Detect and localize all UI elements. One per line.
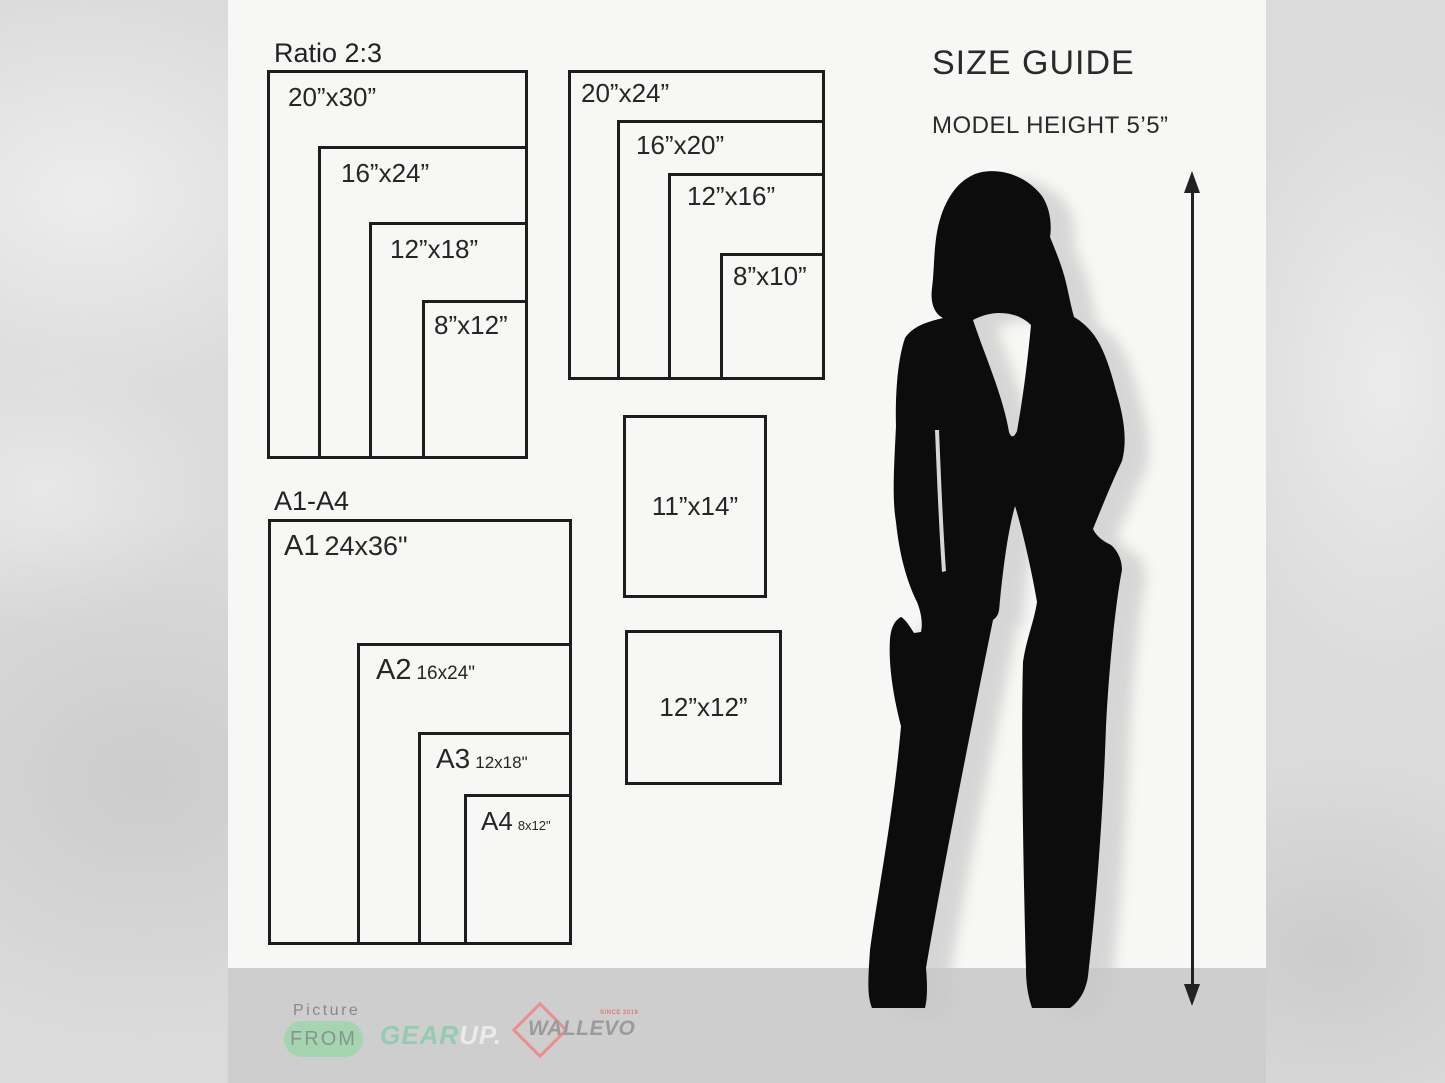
size-box-8x10: 8”x10”: [720, 253, 825, 380]
wallevo-logo: WALLEVO: [528, 1017, 635, 1041]
size-box-12x12: 12”x12”: [625, 630, 782, 785]
size-label-16x20: 16”x20”: [620, 123, 822, 160]
size-box-11x14: 11”x14”: [623, 415, 767, 598]
size-label-a4-size: 8x12": [518, 818, 551, 833]
size-label-a3-code: A3: [436, 743, 470, 775]
size-label-16x24: 16”x24”: [321, 149, 525, 188]
gearup-logo: GEARUP.: [380, 1020, 502, 1051]
size-label-a1-size: 24x36": [324, 531, 407, 562]
size-label-20x24: 20”x24”: [571, 73, 822, 108]
size-guide-poster: Ratio 2:3 20”x30” 16”x24” 12”x18” 8”x12”…: [0, 0, 1445, 1083]
size-label-a4-code: A4: [481, 806, 513, 837]
size-label-20x30: 20”x30”: [270, 73, 525, 112]
size-label-8x10: 8”x10”: [723, 256, 822, 291]
wallevo-since-label: SINCE 2019: [600, 1010, 638, 1016]
content-card: Ratio 2:3 20”x30” 16”x24” 12”x18” 8”x12”…: [228, 0, 1266, 1083]
from-badge-label: FROM: [290, 1028, 357, 1051]
from-badge: FROM: [284, 1021, 363, 1057]
model-silhouette: [865, 168, 1165, 1008]
size-label-12x12: 12”x12”: [659, 693, 747, 722]
a-series-title: A1-A4: [274, 486, 349, 517]
size-label-11x14: 11”x14”: [652, 492, 738, 521]
arrow-down-icon: [1184, 984, 1200, 1006]
size-label-a2-code: A2: [376, 654, 411, 687]
page-title: SIZE GUIDE: [932, 44, 1135, 83]
model-height-label: MODEL HEIGHT 5’5”: [932, 112, 1169, 140]
size-label-a3-size: 12x18": [475, 753, 527, 773]
size-label-12x16: 12”x16”: [671, 176, 822, 211]
height-arrow-line: [1191, 189, 1194, 988]
size-box-8x12: 8”x12”: [422, 300, 528, 459]
size-label-a2-size: 16x24": [416, 663, 475, 685]
size-label-a1-code: A1: [284, 530, 319, 563]
ratio-group-title: Ratio 2:3: [274, 38, 382, 69]
gearup-logo-up: UP.: [459, 1020, 502, 1050]
size-label-12x18: 12”x18”: [372, 225, 525, 264]
size-box-a4: A4 8x12": [464, 794, 572, 945]
gearup-logo-gear: GEAR: [380, 1020, 459, 1050]
size-label-8x12: 8”x12”: [425, 303, 525, 340]
picture-label: Picture: [293, 1002, 360, 1020]
